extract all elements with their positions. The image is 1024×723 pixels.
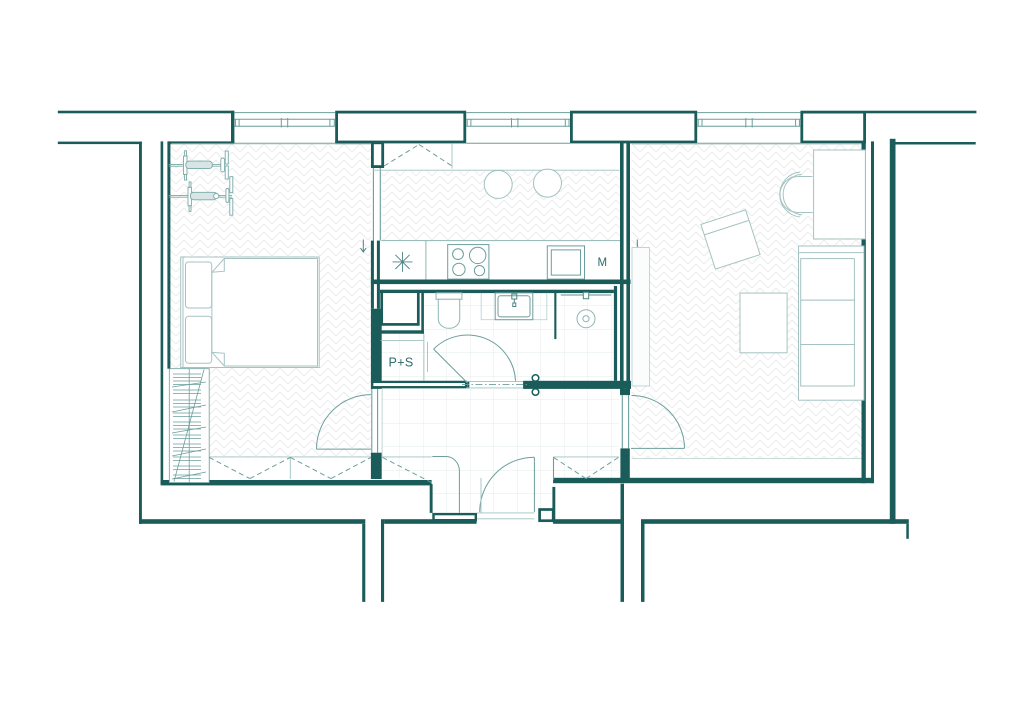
svg-text:M: M bbox=[598, 257, 608, 269]
svg-text:P+S: P+S bbox=[389, 356, 414, 370]
